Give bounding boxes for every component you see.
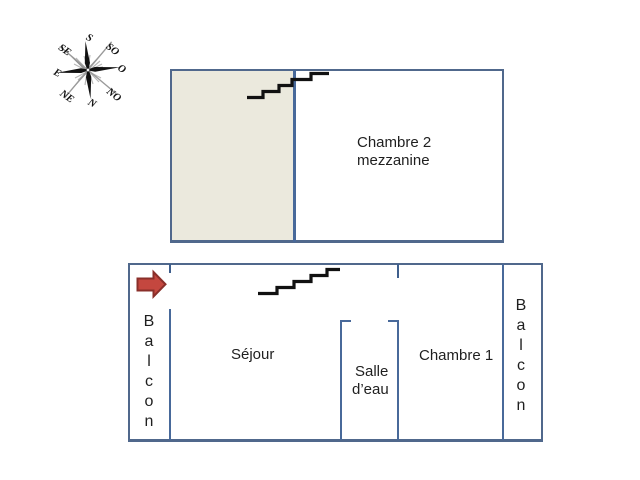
svg-text:NE: NE — [57, 88, 76, 106]
svg-text:N: N — [85, 97, 98, 111]
svg-text:NO: NO — [103, 86, 123, 105]
svg-text:SO: SO — [104, 41, 122, 58]
svg-text:E: E — [51, 67, 63, 80]
svg-text:SE: SE — [56, 42, 73, 58]
svg-text:O: O — [116, 63, 128, 77]
